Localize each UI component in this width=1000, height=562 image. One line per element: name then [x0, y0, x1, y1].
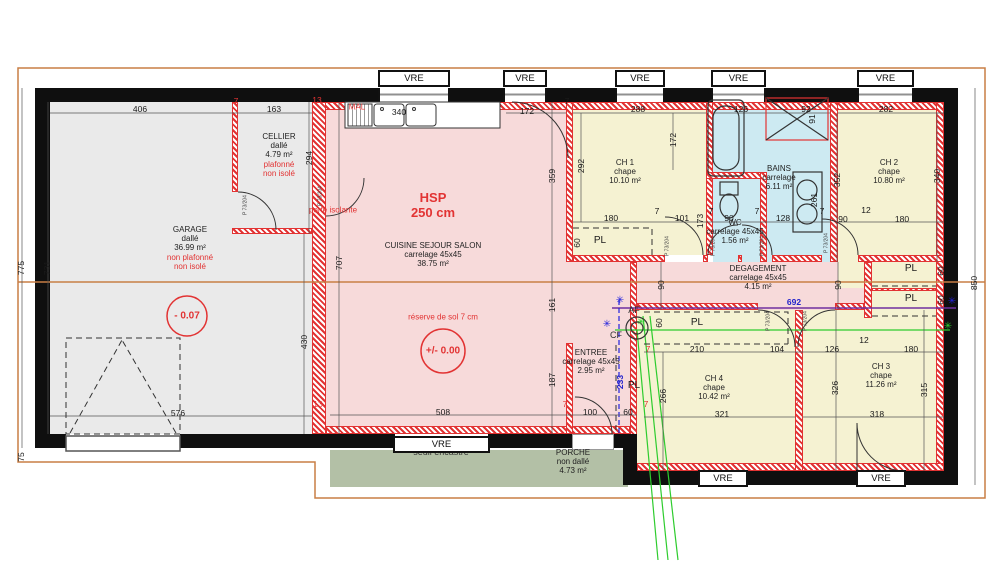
dimension-label: 100	[583, 408, 597, 417]
vre-shutter-label: VRE	[711, 70, 766, 87]
dimension-label: 12	[861, 206, 870, 215]
annotation-porte-isolante: porte isolante	[309, 207, 357, 216]
door-size-label: P 73/204	[319, 186, 324, 206]
vre-shutter-label: VRE	[856, 470, 906, 487]
dimension-label: 7	[565, 97, 570, 106]
room-sub-garage: dallé	[167, 234, 213, 243]
room-label-ch2: CH 2chape10.80 m²	[873, 158, 905, 186]
room-title-cuisine: CUISINE SEJOUR SALON	[385, 241, 481, 250]
dimension-label: 7	[655, 207, 660, 216]
placard-label: PL	[594, 236, 606, 246]
dimension-label: 13	[312, 96, 321, 105]
dimension-label: 161	[548, 298, 557, 312]
room-sub-bains: 6.11 m²	[762, 183, 795, 192]
annotation-machine-a-laver: MAL	[349, 104, 365, 113]
dimension-label: 7	[234, 97, 239, 106]
room-sub-ch1: 10.10 m²	[609, 177, 641, 186]
dimension-label: 731	[43, 261, 52, 275]
dimension-label: 60	[623, 408, 632, 417]
dimension-label: 282	[879, 105, 893, 114]
dimension-label: 173	[696, 214, 705, 228]
dimension-label: 707	[335, 256, 344, 270]
dimension-label: 775	[17, 261, 26, 275]
dimension-label: 101	[675, 214, 689, 223]
dimension-label: 233	[616, 375, 625, 389]
annotation-af: AF	[628, 306, 640, 316]
placard-label: PL	[905, 294, 917, 304]
room-note-garage: non plafonné	[167, 253, 213, 262]
dimension-label: 90	[657, 280, 666, 289]
room-note-cellier: non isolé	[262, 169, 295, 178]
dimension-label: 60	[937, 295, 946, 304]
room-label-ch4: CH 4chape10.42 m²	[698, 374, 730, 402]
room-sub-cuisine: carrelage 45x45	[385, 250, 481, 259]
room-sub-ch4: 10.42 m²	[698, 393, 730, 402]
room-sub-ch2: chape	[873, 167, 905, 176]
dimension-label: 91	[808, 114, 817, 123]
room-sub-cellier: 4.79 m²	[262, 150, 295, 159]
blue-star-icon: ✳	[948, 297, 956, 307]
room-title-porche: PORCHE	[556, 448, 590, 457]
vre-shutter-label: VRE	[503, 70, 547, 87]
dimension-label: 126	[734, 105, 748, 114]
dimension-label: 340	[933, 169, 942, 183]
room-sub-degagement: carrelage 45x45	[729, 273, 786, 282]
dimension-label: 172	[520, 107, 534, 116]
room-label-porche: PORCHEnon dallé4.73 m²	[556, 448, 590, 476]
dimension-label: 90	[724, 214, 733, 223]
dimension-label: 180	[895, 215, 909, 224]
labels-layer: GARAGEdallé36.99 m²non plafonnénon isolé…	[0, 0, 1000, 562]
door-size-label: P 73/204	[244, 195, 249, 215]
room-title-ch2: CH 2	[873, 158, 905, 167]
dimension-label: 294	[305, 151, 314, 165]
room-sub-bains: carrelage	[762, 173, 795, 182]
room-title-entree: ENTREE	[562, 348, 619, 357]
dimension-label: 850	[970, 276, 979, 290]
room-title-degagement: DEGAGEMENT	[729, 264, 786, 273]
door-size-label: P 73/204	[825, 233, 830, 253]
dimension-label: 128	[776, 214, 790, 223]
room-label-cuisine: CUISINE SEJOUR SALONcarrelage 45x4538.75…	[385, 241, 481, 269]
dimension-label: 172	[669, 133, 678, 147]
dimension-label: 75	[17, 452, 26, 461]
room-label-degagement: DEGAGEMENTcarrelage 45x454.15 m²	[729, 264, 786, 292]
annotation-level-sejour: +/- 0.00	[426, 346, 460, 357]
door-size-label: P 73/204	[666, 236, 671, 256]
dimension-label: 126	[825, 345, 839, 354]
room-title-ch4: CH 4	[698, 374, 730, 383]
dimension-label: 292	[577, 159, 586, 173]
dimension-label: 576	[171, 409, 185, 418]
blue-star-icon: ✳	[616, 296, 624, 306]
dimension-label: 288	[631, 105, 645, 114]
room-sub-garage: 36.99 m²	[167, 243, 213, 252]
room-label-ch3: CH 3chape11.26 m²	[866, 362, 897, 390]
dimension-label: 7	[709, 207, 714, 216]
placard-label: PL	[691, 318, 703, 328]
door-size-label: P 73/204	[804, 311, 809, 331]
dimension-label: 326	[831, 381, 840, 395]
vre-shutter-label: VRE	[378, 70, 450, 87]
dimension-label: 7	[755, 207, 760, 216]
dimension-label: 12	[859, 336, 868, 345]
dimension-label: 90	[834, 280, 843, 289]
dimension-label: 60	[655, 318, 664, 327]
vre-shutter-label: VRE	[698, 470, 748, 487]
vre-shutter-label: VRE	[393, 436, 490, 453]
room-sub-entree: carrelage 45x45	[562, 357, 619, 366]
dimension-label: 430	[300, 335, 309, 349]
door-size-label: P 73/204	[761, 236, 766, 256]
dimension-label: 7	[646, 345, 651, 354]
dimension-label: 60	[573, 238, 582, 247]
room-sub-ch4: chape	[698, 383, 730, 392]
room-label-cellier: CELLIERdallé4.79 m²plafonnénon isolé	[262, 132, 295, 178]
dimension-label: 13	[313, 400, 322, 409]
dimension-label: 7	[820, 207, 825, 216]
room-sub-cellier: dallé	[262, 141, 295, 150]
room-sub-ch3: 11.26 m²	[866, 381, 897, 390]
dimension-label: 315	[920, 383, 929, 397]
room-note-cellier: plafonné	[262, 160, 295, 169]
dimension-label: 7	[795, 399, 800, 408]
dimension-label: 359	[548, 169, 557, 183]
dimension-label: 90	[838, 215, 847, 224]
room-label-ch1: CH 1chape10.10 m²	[609, 158, 641, 186]
dimension-label: 318	[870, 410, 884, 419]
dimension-label: 261	[810, 193, 819, 207]
dimension-label: 406	[133, 105, 147, 114]
blue-star-icon: ✳	[603, 320, 611, 330]
room-label-bains: BAINScarrelage6.11 m²	[762, 164, 795, 192]
room-title-bains: BAINS	[762, 164, 795, 173]
annotation-cf: CF	[610, 331, 622, 341]
annotation-reserve-sol: réserve de sol 7 cm	[408, 314, 478, 323]
door-size-label: P 73/204	[712, 236, 717, 256]
room-title-ch3: CH 3	[866, 362, 897, 371]
vre-shutter-label: VRE	[857, 70, 914, 87]
room-title-wc: WC	[706, 218, 763, 227]
vre-shutter-label: VRE	[615, 70, 665, 87]
room-sub-entree: 2.95 m²	[562, 367, 619, 376]
door-size-label: P 73/204	[767, 311, 772, 331]
room-sub-ch1: chape	[609, 167, 641, 176]
dimension-label: 180	[604, 214, 618, 223]
room-label-entree: ENTREEcarrelage 45x452.95 m²	[562, 348, 619, 376]
room-title-cellier: CELLIER	[262, 132, 295, 141]
room-title-ch1: CH 1	[609, 158, 641, 167]
dimension-label: 92	[801, 105, 810, 114]
room-title-garage: GARAGE	[167, 225, 213, 234]
green-star-icon: ✳	[637, 318, 645, 328]
dimension-label: 60	[937, 266, 946, 275]
dimension-label: 340	[392, 108, 406, 117]
placard-label: PL	[905, 264, 917, 274]
room-sub-cuisine: 38.75 m²	[385, 260, 481, 269]
room-sub-ch2: 10.80 m²	[873, 177, 905, 186]
dimension-label: 187	[548, 373, 557, 387]
dimension-label: 210	[690, 345, 704, 354]
dimension-label: 7	[563, 400, 568, 409]
green-star-icon: ✳	[944, 322, 952, 332]
dimension-label: 352	[833, 173, 842, 187]
annotation-hsp: HSP	[420, 191, 447, 205]
dimension-label: 7	[644, 400, 649, 409]
dimension-label: 321	[715, 410, 729, 419]
dimension-label: 508	[436, 408, 450, 417]
room-label-garage: GARAGEdallé36.99 m²non plafonnénon isolé	[167, 225, 213, 271]
floor-plan: GARAGEdallé36.99 m²non plafonnénon isolé…	[0, 0, 1000, 562]
dimension-label: 692	[787, 298, 801, 307]
annotation-level-garage: - 0.07	[174, 311, 200, 322]
annotation-hsp-value: 250 cm	[411, 206, 455, 220]
room-note-garage: non isolé	[167, 262, 213, 271]
dimension-label: 180	[904, 345, 918, 354]
dimension-label: 163	[267, 105, 281, 114]
room-sub-porche: 4.73 m²	[556, 467, 590, 476]
room-sub-ch3: chape	[866, 371, 897, 380]
room-sub-degagement: 4.15 m²	[729, 283, 786, 292]
dimension-label: 104	[770, 345, 784, 354]
dimension-label: 266	[659, 389, 668, 403]
room-sub-porche: non dallé	[556, 457, 590, 466]
placard-label: PL	[628, 381, 640, 391]
